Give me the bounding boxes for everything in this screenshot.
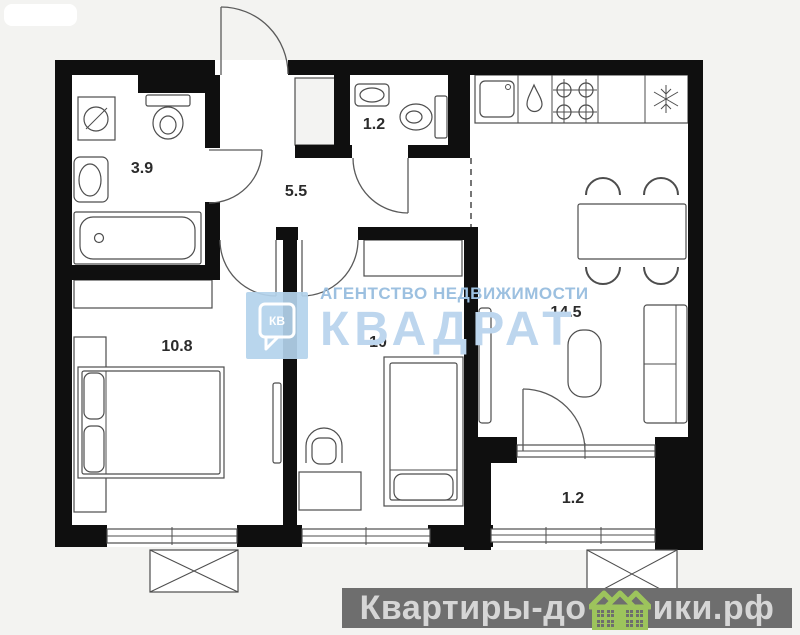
room-label-balcony: 1.2 bbox=[562, 490, 584, 507]
wardrobe bbox=[364, 240, 462, 276]
room-label-bathroom: 3.9 bbox=[131, 160, 153, 177]
site-name-right: ики.рф bbox=[653, 589, 775, 628]
hall-closet bbox=[295, 78, 335, 145]
window bbox=[302, 527, 430, 545]
wall-sink-icon bbox=[74, 157, 108, 202]
kitchen-counter bbox=[475, 75, 688, 123]
coffee-table bbox=[568, 330, 601, 397]
floor-plan-image: 3.9 1.2 5.5 10.8 10 14.5 1.2 КВ АГЕНТСТВ… bbox=[0, 0, 800, 635]
mirror-panel bbox=[273, 383, 281, 463]
room-label-bedroom-main: 10.8 bbox=[161, 338, 192, 355]
room-label-kitchen-living: 14.5 bbox=[550, 304, 581, 321]
air-conditioner-box bbox=[150, 550, 238, 592]
window bbox=[107, 527, 237, 545]
room-label-bedroom-second: 10 bbox=[369, 334, 387, 351]
watermark-site-bar: Квартиры-до ики.рф bbox=[342, 588, 792, 628]
balcony-window-band bbox=[517, 443, 655, 459]
green-houses-icon bbox=[589, 590, 651, 630]
wardrobe bbox=[74, 280, 212, 308]
corner-sink-icon bbox=[355, 84, 389, 106]
dining-table bbox=[578, 204, 686, 259]
bathtub-icon bbox=[74, 212, 201, 264]
balcony-glazing bbox=[491, 527, 655, 544]
room-label-hallway: 5.5 bbox=[285, 183, 307, 200]
floor-plan-svg: 3.9 1.2 5.5 10.8 10 14.5 1.2 bbox=[0, 0, 800, 635]
washing-machine-icon bbox=[78, 97, 115, 140]
desk bbox=[299, 472, 361, 510]
sofa bbox=[644, 305, 687, 423]
site-name-left: Квартиры-до bbox=[360, 589, 587, 628]
room-label-toilet: 1.2 bbox=[363, 116, 385, 133]
shelf-panel bbox=[479, 308, 491, 423]
single-bed bbox=[384, 357, 463, 506]
